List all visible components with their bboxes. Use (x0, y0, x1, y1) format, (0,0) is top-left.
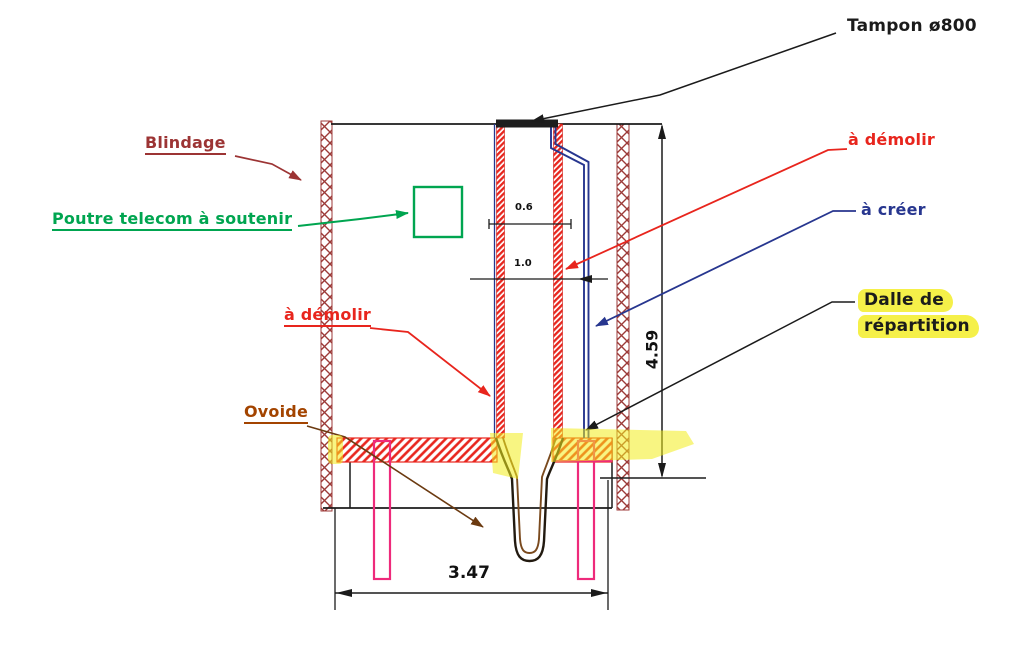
blindage-leader-line (235, 156, 301, 180)
tampon-leader-line (532, 33, 836, 121)
blindage-label: Blindage (145, 134, 226, 155)
dalle-line2: répartition (858, 315, 979, 338)
slab-left-section (337, 438, 497, 462)
tampon-label: Tampon ø800 (847, 17, 977, 36)
poutre-leader-line (298, 213, 408, 226)
dalle-line1: Dalle de (858, 289, 953, 312)
dim-inner-width-value: 0.6 (515, 202, 533, 213)
creer-leader-line (596, 211, 856, 326)
a-creer-label: à créer (861, 201, 926, 219)
ovoide-label: Ovoide (244, 403, 308, 424)
highlight-slab-left-edge (328, 435, 343, 464)
dalle-repartition-label: Dalle de répartition (858, 287, 979, 339)
demolir-left-leader-line (370, 328, 490, 396)
poutre-telecom-label: Poutre telecom à soutenir (52, 210, 292, 231)
dim-outer-width-arrow (578, 275, 592, 283)
dim-height-value: 4.59 (643, 330, 662, 370)
a-demolir-left-label: à démolir (284, 306, 371, 327)
highlight-slab-right (551, 428, 694, 462)
a-demolir-right-label: à démolir (848, 131, 935, 149)
demolir-right-leader-line (566, 149, 847, 269)
dim-outer-width-value: 1.0 (514, 258, 532, 269)
tampon-cover (496, 120, 558, 128)
dim-height-arrow-bottom (658, 463, 666, 478)
dim-width-arrow-right (591, 589, 607, 597)
highlight-shaft-base (490, 433, 523, 479)
dim-width-arrow-left (336, 589, 352, 597)
shaft-right-wall-demolish (554, 124, 563, 438)
telecom-beam-box (414, 187, 462, 237)
dim-width-value: 3.47 (448, 563, 490, 583)
technical-drawing-page: Tampon ø800 Blindage Poutre telecom à so… (0, 0, 1024, 645)
dim-height-arrow-top (658, 124, 666, 139)
shaft-left-wall-demolish (497, 124, 505, 438)
